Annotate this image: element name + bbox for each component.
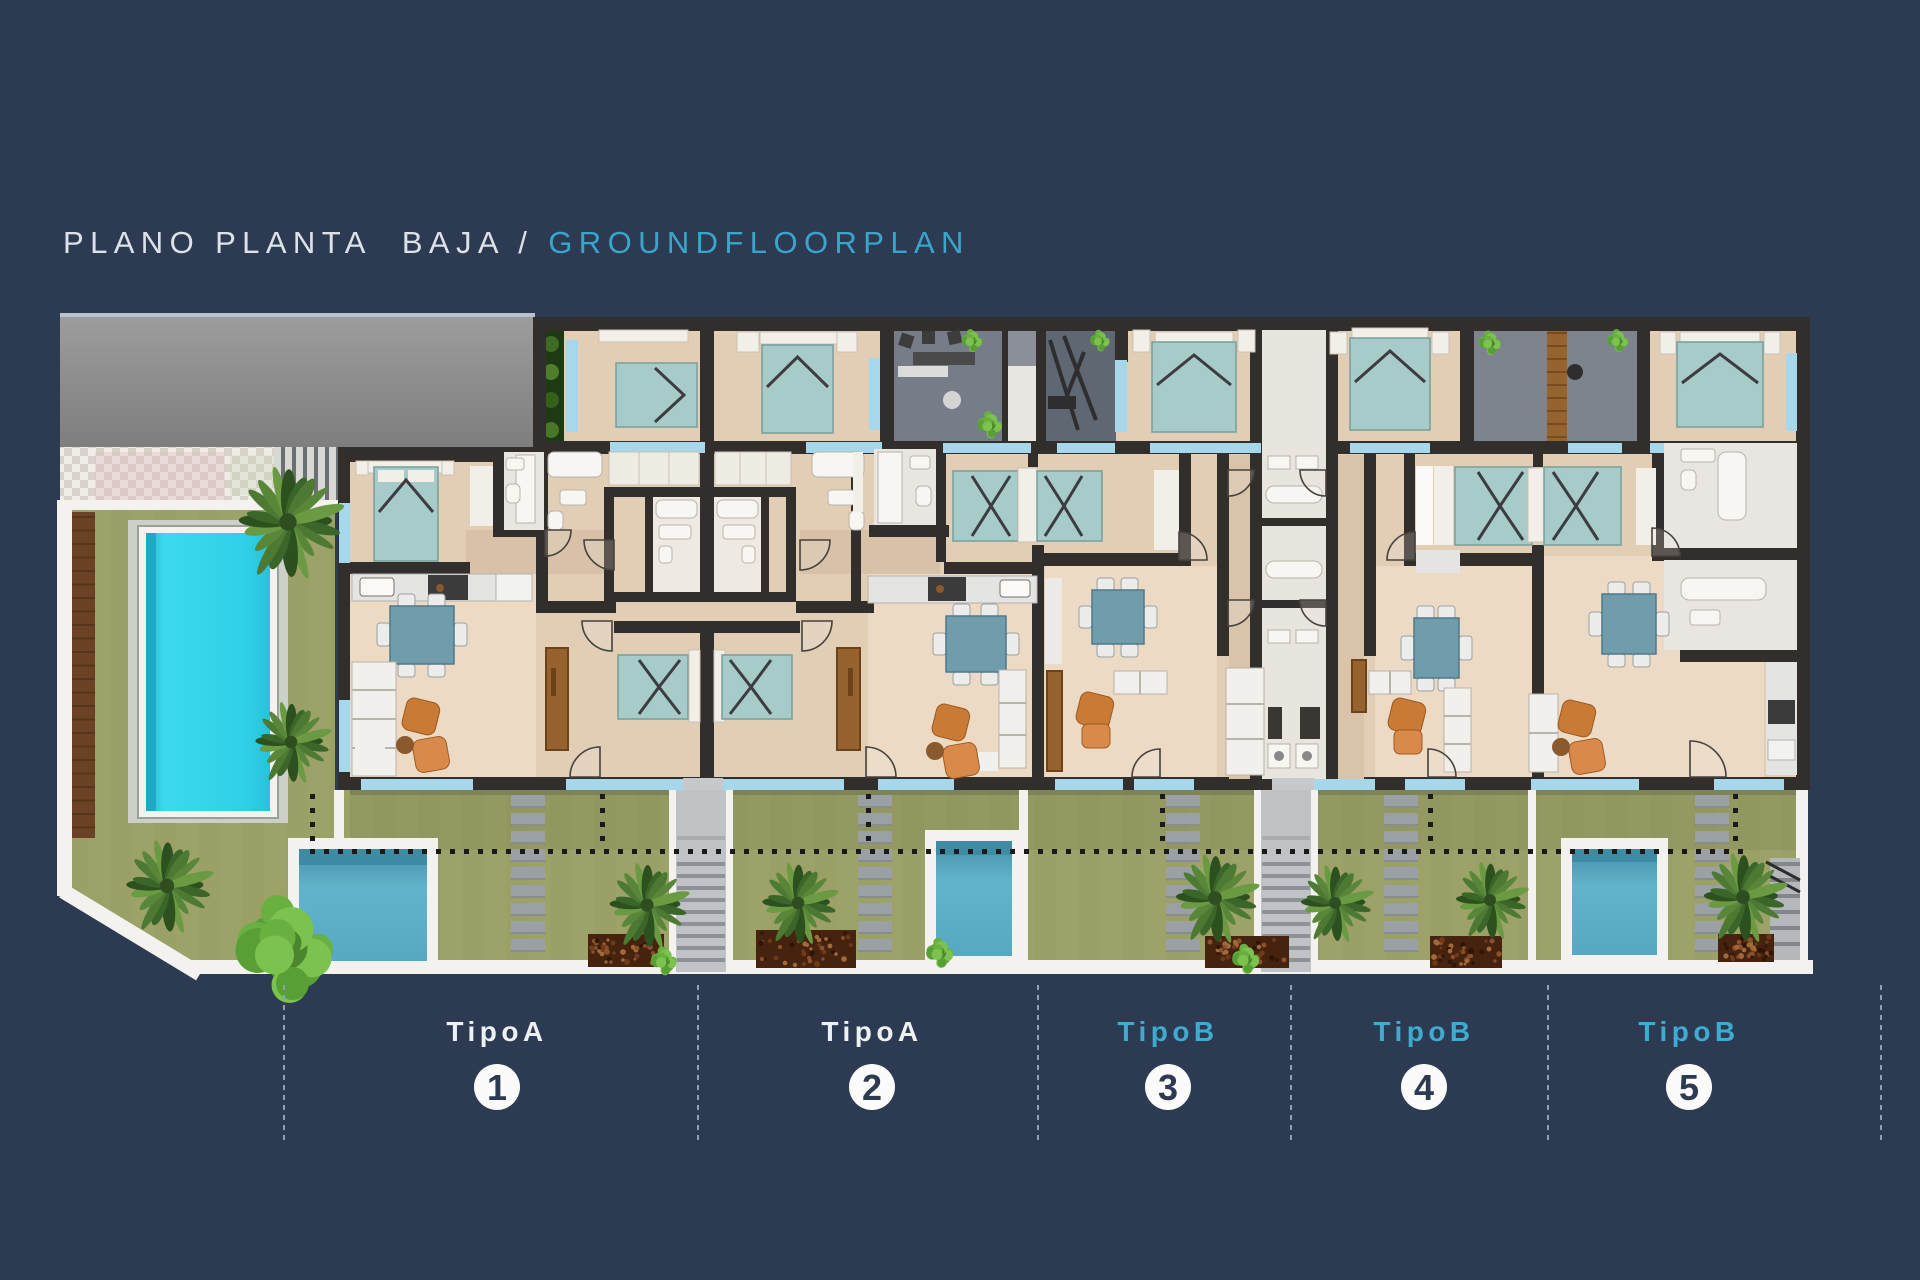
svg-text:3: 3 (1158, 1067, 1178, 1108)
svg-text:TipoB: TipoB (1638, 1016, 1739, 1047)
svg-text:TipoB: TipoB (1373, 1016, 1474, 1047)
svg-text:TipoA: TipoA (446, 1016, 547, 1047)
svg-text:PLANO PLANTA BAJA / GROUNDFLO: PLANO PLANTA BAJA / GROUNDFLOORPLAN (63, 225, 970, 260)
svg-text:TipoB: TipoB (1117, 1016, 1218, 1047)
svg-text:5: 5 (1679, 1067, 1699, 1108)
svg-text:TipoA: TipoA (821, 1016, 922, 1047)
svg-text:2: 2 (862, 1067, 882, 1108)
svg-text:4: 4 (1414, 1067, 1434, 1108)
svg-text:1: 1 (487, 1067, 507, 1108)
